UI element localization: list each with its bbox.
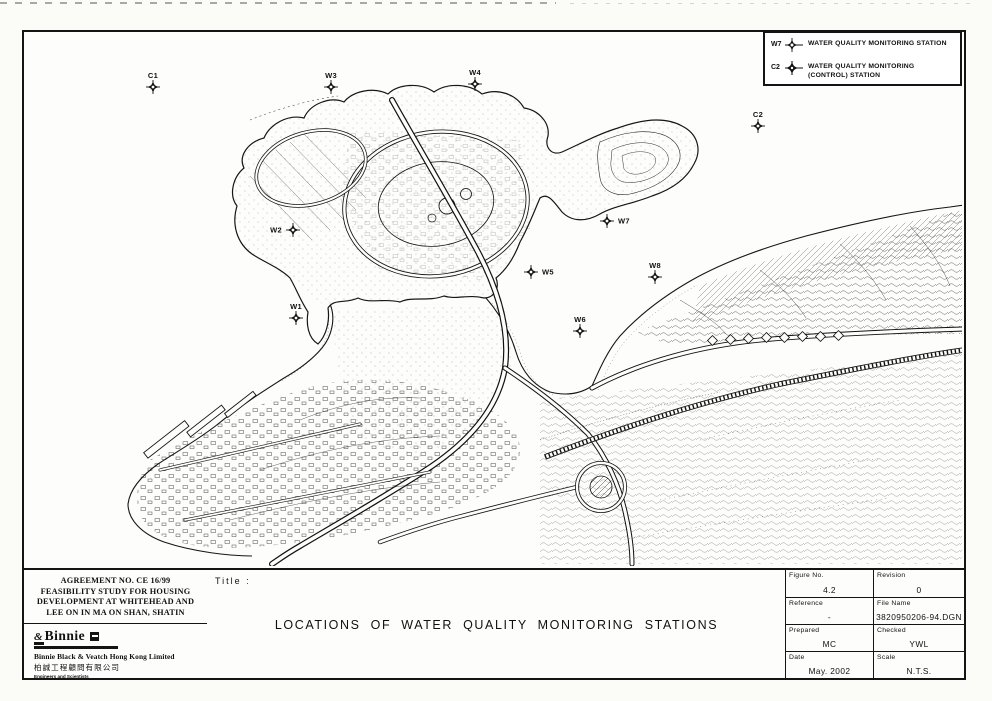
station-symbol-icon (289, 311, 303, 325)
revision-label: Revision (877, 572, 905, 579)
station-marker-w4: W4 (468, 77, 482, 91)
station-label: C2 (753, 110, 763, 119)
station-marker-w8: W8 (648, 270, 662, 284)
scan-artifact (0, 2, 556, 4)
prepared-label: Prepared (789, 627, 819, 634)
drawing-sheet: W7 WATER QUALITY MONITORING STATION C2 (0, 0, 992, 701)
prepared-value: MC (786, 639, 873, 649)
station-label: C1 (148, 71, 158, 80)
scale-value: N.T.S. (874, 666, 964, 676)
company-logo-mark-icon (90, 632, 99, 641)
drawing-title: LOCATIONS OF WATER QUALITY MONITORING ST… (207, 618, 786, 632)
file-name-cell: File Name 3820950206-94.DGN (873, 597, 964, 624)
station-symbol-icon (785, 38, 804, 57)
reference-cell: Reference - (786, 597, 873, 624)
company-tagline: Engineers and Scientists (34, 674, 199, 679)
station-symbol-icon (751, 119, 765, 133)
station-marker-w6: W6 (573, 324, 587, 338)
prepared-cell: Prepared MC (786, 624, 873, 651)
figure-no-label: Figure No. (789, 572, 824, 579)
station-marker-w3: W3 (324, 80, 338, 94)
date-value: May. 2002 (786, 666, 873, 676)
checked-cell: Checked YWL (873, 624, 964, 651)
title-block-project: AGREEMENT NO. CE 16/99 FEASIBILITY STUDY… (22, 568, 208, 680)
station-symbol-icon (600, 214, 614, 228)
legend-item-control: C2 WATER QUALITY MONITORING (CONTROL) ST… (771, 61, 955, 80)
station-symbol-icon (286, 223, 300, 237)
date-cell: Date May. 2002 (786, 651, 873, 678)
station-label: W1 (290, 302, 302, 311)
station-marker-w7: W7 (600, 214, 614, 228)
legend-station-tag: C2 (771, 61, 785, 71)
project-line: LEE ON IN MA ON SHAN, SHATIN (24, 608, 207, 619)
project-line: AGREEMENT NO. CE 16/99 (24, 576, 207, 587)
scale-label: Scale (877, 654, 896, 661)
scale-cell: Scale N.T.S. (873, 651, 964, 678)
legend-item-label: WATER QUALITY MONITORING STATION (808, 38, 947, 49)
company-logo-text: Binnie (45, 628, 86, 644)
date-label: Date (789, 654, 805, 661)
station-symbol-icon (648, 270, 662, 284)
figure-no-cell: Figure No. 4.2 (786, 570, 873, 597)
station-label: W3 (325, 71, 337, 80)
station-marker-c1: C1 (146, 80, 160, 94)
revision-value: 0 (874, 585, 964, 595)
title-block-info: Figure No. 4.2 Revision 0 Reference - Fi… (785, 568, 966, 680)
legend-item-monitoring: W7 WATER QUALITY MONITORING STATION (771, 38, 955, 57)
station-label: W2 (270, 226, 282, 235)
title-block-title: Title : LOCATIONS OF WATER QUALITY MONIT… (207, 568, 786, 680)
station-label: W8 (649, 261, 661, 270)
title-label: Title : (215, 576, 251, 586)
station-marker-w5: W5 (524, 265, 538, 279)
company-name-chinese: 柏誠工程顧問有限公司 (34, 662, 199, 673)
station-symbol-icon (324, 80, 338, 94)
station-marker-c2: C2 (751, 119, 765, 133)
station-symbol-icon (573, 324, 587, 338)
station-label: W5 (542, 268, 554, 277)
checked-value: YWL (874, 639, 964, 649)
scan-artifact (570, 3, 970, 4)
company-name: Binnie Black & Veatch Hong Kong Limited (34, 652, 199, 661)
legend-box: W7 WATER QUALITY MONITORING STATION C2 (763, 32, 962, 86)
legend-station-tag: W7 (771, 38, 785, 48)
file-name-value: 3820950206-94.DGN (874, 612, 964, 622)
station-marker-w1: W1 (289, 311, 303, 325)
legend-item-label: WATER QUALITY MONITORING (CONTROL) STATI… (808, 61, 955, 80)
revision-cell: Revision 0 (873, 570, 964, 597)
station-label: W6 (574, 315, 586, 324)
company-block: & Binnie Binnie Black & Veatch Hong Kong… (24, 624, 207, 679)
station-symbol-icon (146, 80, 160, 94)
station-symbol-icon (468, 77, 482, 91)
reference-label: Reference (789, 600, 823, 607)
project-line: DEVELOPMENT AT WHITEHEAD AND (24, 597, 207, 608)
figure-no-value: 4.2 (786, 585, 873, 595)
reference-value: - (786, 612, 873, 622)
logo-underline (34, 646, 118, 649)
checked-label: Checked (877, 627, 906, 634)
station-symbol-icon (524, 265, 538, 279)
station-label: W7 (618, 217, 630, 226)
map-drawing (24, 32, 962, 566)
project-line: FEASIBILITY STUDY FOR HOUSING (24, 587, 207, 598)
station-marker-w2: W2 (286, 223, 300, 237)
station-label: W4 (469, 68, 481, 77)
control-station-symbol-icon (785, 61, 804, 80)
file-name-label: File Name (877, 600, 911, 607)
